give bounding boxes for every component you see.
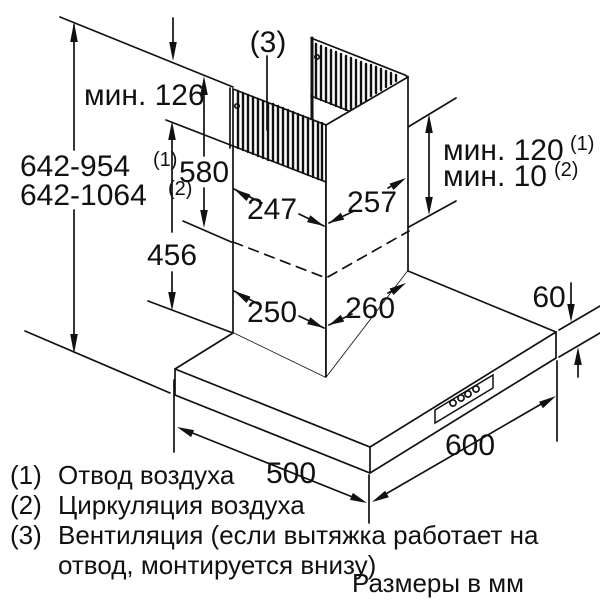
dim-260-label: 260 <box>345 292 395 325</box>
legend-item-2-text: Циркуляция воздуха <box>58 490 596 520</box>
control-button-2 <box>458 395 464 401</box>
dim-60-label: 60 <box>532 281 565 314</box>
dim-min126-label: мин. 126 <box>84 79 205 112</box>
callout-3-label: (3) <box>250 26 287 59</box>
legend-item-1-text: Отвод воздуха <box>58 460 596 490</box>
control-button-4 <box>473 386 479 392</box>
legend-item-2: (2) Циркуляция воздуха <box>10 490 596 520</box>
telescope-joint-extension-line-right <box>407 201 456 228</box>
dim-min10-sup: (2) <box>554 159 578 181</box>
units-note: Размеры в мм <box>352 568 524 599</box>
dimension-diagram-page: 642-954 (1) 642-1064 (2) мин. 126 580 45… <box>0 0 600 600</box>
right-upper-extension-line <box>408 98 456 127</box>
dim-total-height-2-label: 642-1064 <box>20 179 147 212</box>
dim-456-label: 456 <box>147 239 197 272</box>
dim-257-label: 257 <box>347 186 397 219</box>
dim-min10-label: мин. 10 <box>443 160 547 193</box>
dim-min120-line <box>425 114 433 215</box>
legend-item-1-number: (1) <box>10 460 58 490</box>
dim-600-label: 600 <box>445 429 495 462</box>
dim-min126-arrows <box>169 18 177 61</box>
vent-band-bottom-extension-line <box>166 120 233 146</box>
dim-total-height-1-sup: (1) <box>153 149 177 171</box>
legend: (1) Отвод воздуха (2) Циркуляция воздуха… <box>10 460 596 580</box>
legend-item-2-number: (2) <box>10 490 58 520</box>
legend-item-3-number: (3) <box>10 520 58 580</box>
dim-580-label: 580 <box>179 156 229 189</box>
chimney-top-rim-extension-line <box>60 17 233 87</box>
chimney-base-extension-line <box>148 301 233 333</box>
legend-item-1: (1) Отвод воздуха <box>10 460 596 490</box>
dim-60-arrows <box>567 283 582 377</box>
control-button-1 <box>450 400 456 406</box>
hood-bottom-extension-line <box>25 331 170 393</box>
dim-250-label: 250 <box>247 296 297 329</box>
control-button-3 <box>465 391 471 397</box>
hood-bottom-edge-extension-line <box>559 333 600 357</box>
dim-min120-sup: (1) <box>570 133 594 155</box>
dim-247-label: 247 <box>247 193 297 226</box>
